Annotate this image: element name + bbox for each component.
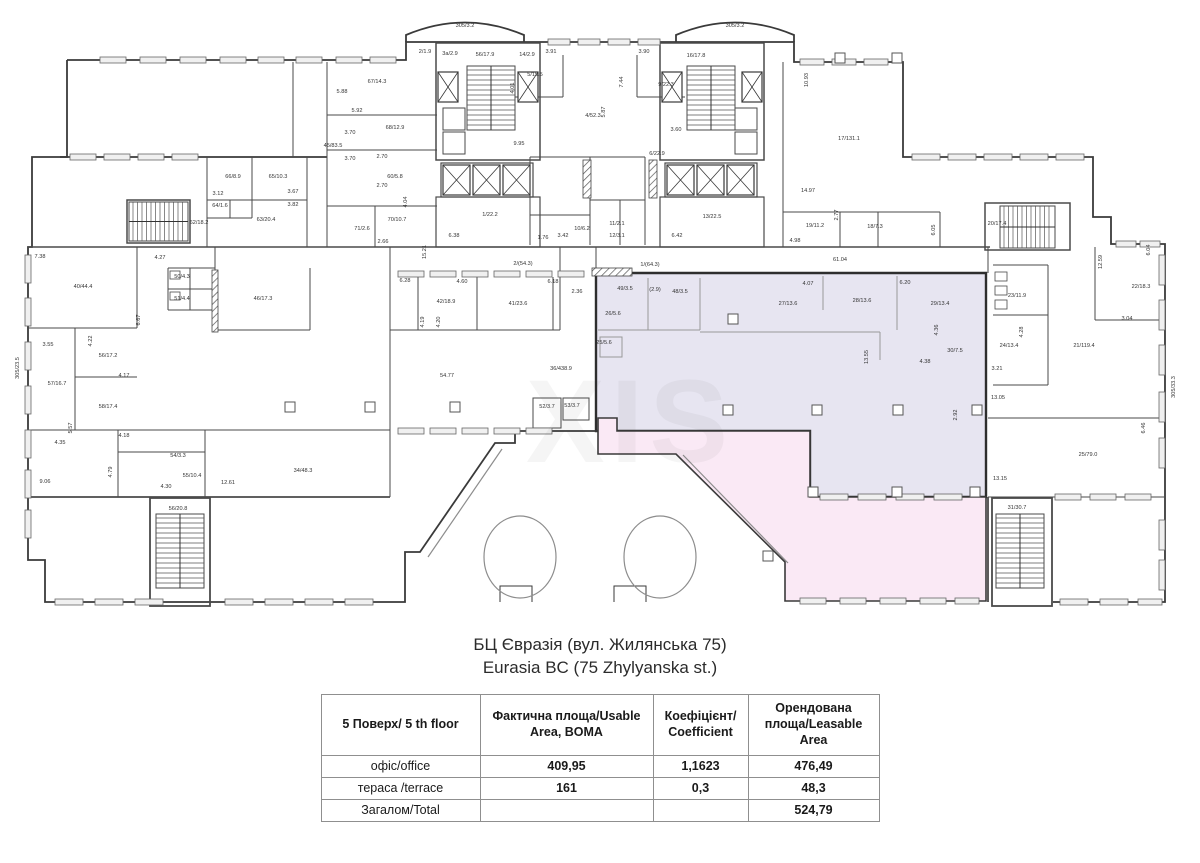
cell-leasable: 524,79 bbox=[748, 799, 879, 821]
svg-text:305/33.3: 305/33.3 bbox=[1171, 376, 1177, 398]
svg-text:54/3.3: 54/3.3 bbox=[170, 453, 186, 459]
svg-text:56/17.9: 56/17.9 bbox=[476, 52, 495, 58]
cell-usable bbox=[480, 799, 653, 821]
floor-plan-area: XIS 305/3.2305/3.22/1.93a/2.956/17.914/2… bbox=[0, 0, 1200, 628]
svg-text:17/131.1: 17/131.1 bbox=[838, 136, 860, 142]
svg-text:64/1.6: 64/1.6 bbox=[212, 203, 228, 209]
svg-text:29/13.4: 29/13.4 bbox=[931, 301, 950, 307]
svg-text:3.04: 3.04 bbox=[1122, 316, 1133, 322]
cell-usable: 409,95 bbox=[480, 755, 653, 777]
svg-text:6.42: 6.42 bbox=[672, 233, 683, 239]
svg-text:4.30: 4.30 bbox=[161, 484, 172, 490]
svg-text:14/2.9: 14/2.9 bbox=[519, 52, 535, 58]
svg-text:21/119.4: 21/119.4 bbox=[1073, 343, 1094, 349]
svg-text:11/2.1: 11/2.1 bbox=[609, 221, 624, 227]
svg-text:12/3.1: 12/3.1 bbox=[609, 233, 625, 239]
svg-text:56/20.8: 56/20.8 bbox=[169, 506, 188, 512]
svg-text:2.70: 2.70 bbox=[377, 154, 388, 160]
svg-text:3.70: 3.70 bbox=[345, 156, 356, 162]
svg-text:7.44: 7.44 bbox=[619, 77, 625, 88]
svg-text:4.38: 4.38 bbox=[920, 359, 931, 365]
svg-text:1/22.2: 1/22.2 bbox=[482, 212, 498, 218]
svg-text:12.61: 12.61 bbox=[221, 480, 235, 486]
svg-text:4.07: 4.07 bbox=[803, 281, 814, 287]
svg-text:65/10.3: 65/10.3 bbox=[269, 174, 288, 180]
svg-text:4.04: 4.04 bbox=[403, 197, 409, 208]
svg-text:3.90: 3.90 bbox=[639, 49, 650, 55]
floor-plan-drawing: XIS 305/3.2305/3.22/1.93a/2.956/17.914/2… bbox=[0, 0, 1200, 628]
svg-text:51/4.4: 51/4.4 bbox=[174, 296, 190, 302]
svg-text:2.36: 2.36 bbox=[572, 289, 583, 295]
col-header-leasable: Орендована площа/Leasable Area bbox=[748, 694, 879, 755]
svg-text:6.28: 6.28 bbox=[400, 278, 411, 284]
svg-text:4.36: 4.36 bbox=[934, 325, 940, 336]
svg-text:3.82: 3.82 bbox=[288, 202, 299, 208]
svg-text:61.04: 61.04 bbox=[833, 257, 847, 263]
svg-text:13/22.5: 13/22.5 bbox=[703, 214, 722, 220]
svg-text:6.67: 6.67 bbox=[136, 315, 142, 326]
svg-text:36/438.9: 36/438.9 bbox=[550, 366, 572, 372]
elevator-shafts bbox=[438, 72, 762, 195]
svg-text:305/3.2: 305/3.2 bbox=[726, 23, 745, 29]
svg-text:6.46: 6.46 bbox=[1141, 423, 1147, 434]
svg-text:6.05: 6.05 bbox=[931, 225, 937, 236]
svg-text:2.66: 2.66 bbox=[378, 239, 389, 245]
svg-text:42/18.9: 42/18.9 bbox=[437, 299, 456, 305]
svg-text:18/7.3: 18/7.3 bbox=[867, 224, 883, 230]
svg-text:3.60: 3.60 bbox=[671, 127, 682, 133]
svg-text:30/7.5: 30/7.5 bbox=[947, 348, 963, 354]
svg-text:7.38: 7.38 bbox=[35, 254, 46, 260]
svg-text:14.97: 14.97 bbox=[801, 188, 815, 194]
svg-text:4.01: 4.01 bbox=[510, 83, 516, 94]
svg-text:9.95: 9.95 bbox=[514, 141, 525, 147]
svg-text:53/3.7: 53/3.7 bbox=[564, 403, 580, 409]
svg-text:67/14.3: 67/14.3 bbox=[368, 79, 387, 85]
svg-text:26/5.6: 26/5.6 bbox=[605, 311, 621, 317]
svg-text:305/3.2: 305/3.2 bbox=[456, 23, 475, 29]
svg-text:68/12.9: 68/12.9 bbox=[386, 125, 405, 131]
svg-text:9.06: 9.06 bbox=[40, 479, 51, 485]
svg-text:4.18: 4.18 bbox=[119, 433, 130, 439]
svg-text:27/13.6: 27/13.6 bbox=[779, 301, 798, 307]
svg-text:24/13.4: 24/13.4 bbox=[1000, 343, 1019, 349]
svg-text:25/79.0: 25/79.0 bbox=[1079, 452, 1098, 458]
svg-text:10.93: 10.93 bbox=[804, 73, 810, 87]
svg-text:25/5.6: 25/5.6 bbox=[596, 340, 612, 346]
svg-text:4.17: 4.17 bbox=[119, 373, 130, 379]
svg-text:5.57: 5.57 bbox=[68, 423, 74, 434]
title-block: БЦ Євразія (вул. Жилянська 75) Eurasia B… bbox=[0, 634, 1200, 680]
cell-coefficient bbox=[653, 799, 748, 821]
svg-text:22/18.3: 22/18.3 bbox=[1132, 284, 1151, 290]
svg-text:2.77: 2.77 bbox=[834, 210, 840, 221]
row-label: офіс/office bbox=[321, 755, 480, 777]
svg-text:62/18.2: 62/18.2 bbox=[190, 220, 209, 226]
row-label: Загалом/Total bbox=[321, 799, 480, 821]
svg-text:20/17.4: 20/17.4 bbox=[988, 221, 1007, 227]
svg-text:6.04: 6.04 bbox=[1146, 245, 1152, 256]
page-title-uk: БЦ Євразія (вул. Жилянська 75) bbox=[0, 634, 1200, 657]
svg-text:58/17.4: 58/17.4 bbox=[99, 404, 118, 410]
area-table: 5 Поверх/ 5 th floor Фактична площа/Usab… bbox=[321, 694, 880, 822]
svg-text:60/5.8: 60/5.8 bbox=[387, 174, 403, 180]
svg-text:46/17.3: 46/17.3 bbox=[254, 296, 273, 302]
svg-text:70/10.7: 70/10.7 bbox=[388, 217, 407, 223]
cell-leasable: 48,3 bbox=[748, 777, 879, 799]
svg-text:4.22: 4.22 bbox=[88, 336, 94, 347]
svg-text:6.18: 6.18 bbox=[548, 279, 559, 285]
svg-text:12.59: 12.59 bbox=[1098, 255, 1104, 269]
cell-coefficient: 0,3 bbox=[653, 777, 748, 799]
watermark: XIS bbox=[526, 356, 734, 488]
cell-leasable: 476,49 bbox=[748, 755, 879, 777]
svg-text:48/3.5: 48/3.5 bbox=[672, 289, 688, 295]
row-label: тераса /terrace bbox=[321, 777, 480, 799]
svg-text:3.91: 3.91 bbox=[546, 49, 557, 55]
svg-text:40/44.4: 40/44.4 bbox=[74, 284, 93, 290]
svg-text:4.28: 4.28 bbox=[1019, 327, 1025, 338]
svg-text:1/(64.3): 1/(64.3) bbox=[640, 262, 659, 268]
svg-text:9/22.3: 9/22.3 bbox=[658, 82, 674, 88]
svg-text:2.70: 2.70 bbox=[377, 183, 388, 189]
svg-text:31/30.7: 31/30.7 bbox=[1008, 505, 1027, 511]
svg-text:2/(54.3): 2/(54.3) bbox=[513, 261, 532, 267]
svg-text:4.27: 4.27 bbox=[155, 255, 166, 261]
table-row-office: офіс/office 409,95 1,1623 476,49 bbox=[321, 755, 879, 777]
col-header-coefficient: Коефіцієнт/ Coefficient bbox=[653, 694, 748, 755]
col-header-floor: 5 Поверх/ 5 th floor bbox=[321, 694, 480, 755]
svg-text:6/22.9: 6/22.9 bbox=[649, 151, 665, 157]
svg-text:13.15: 13.15 bbox=[993, 476, 1007, 482]
svg-text:3.55: 3.55 bbox=[43, 342, 54, 348]
svg-text:4.19: 4.19 bbox=[420, 317, 426, 328]
cell-coefficient: 1,1623 bbox=[653, 755, 748, 777]
svg-text:28/13.6: 28/13.6 bbox=[853, 298, 872, 304]
svg-text:3.12: 3.12 bbox=[213, 191, 224, 197]
cell-usable: 161 bbox=[480, 777, 653, 799]
table-header-row: 5 Поверх/ 5 th floor Фактична площа/Usab… bbox=[321, 694, 879, 755]
svg-text:10/6.2: 10/6.2 bbox=[574, 226, 590, 232]
svg-text:2.92: 2.92 bbox=[953, 410, 959, 421]
svg-text:54.77: 54.77 bbox=[440, 373, 454, 379]
svg-text:5.88: 5.88 bbox=[337, 89, 348, 95]
svg-text:63/20.4: 63/20.4 bbox=[257, 217, 276, 223]
svg-text:4.60: 4.60 bbox=[457, 279, 468, 285]
svg-text:6.38: 6.38 bbox=[449, 233, 460, 239]
svg-text:4.35: 4.35 bbox=[55, 440, 66, 446]
svg-text:13.55: 13.55 bbox=[864, 350, 870, 364]
svg-text:52/3.7: 52/3.7 bbox=[539, 404, 555, 410]
table-row-total: Загалом/Total 524,79 bbox=[321, 799, 879, 821]
page-title-en: Eurasia BC (75 Zhylyanska st.) bbox=[0, 657, 1200, 680]
svg-text:66/8.9: 66/8.9 bbox=[225, 174, 241, 180]
svg-text:3a/2.9: 3a/2.9 bbox=[442, 51, 458, 57]
svg-text:3.42: 3.42 bbox=[558, 233, 569, 239]
svg-text:50/4.3: 50/4.3 bbox=[174, 274, 190, 280]
svg-text:49/3.5: 49/3.5 bbox=[617, 286, 633, 292]
svg-text:4.79: 4.79 bbox=[108, 467, 114, 478]
svg-text:45/83.5: 45/83.5 bbox=[324, 143, 343, 149]
svg-text:1.76: 1.76 bbox=[538, 235, 549, 241]
dome-circle-right bbox=[624, 516, 696, 598]
svg-text:5.92: 5.92 bbox=[352, 108, 363, 114]
svg-text:13.05: 13.05 bbox=[991, 395, 1005, 401]
svg-text:4/52.3: 4/52.3 bbox=[585, 113, 601, 119]
svg-text:34/48.3: 34/48.3 bbox=[294, 468, 313, 474]
col-header-usable: Фактична площа/Usable Area, BOMA bbox=[480, 694, 653, 755]
svg-text:3.67: 3.67 bbox=[288, 189, 299, 195]
svg-text:23/11.9: 23/11.9 bbox=[1008, 293, 1026, 299]
svg-text:2/1.9: 2/1.9 bbox=[419, 49, 431, 55]
svg-text:(2.9): (2.9) bbox=[649, 287, 661, 293]
svg-text:19/11.2: 19/11.2 bbox=[806, 223, 824, 229]
svg-text:3.21: 3.21 bbox=[992, 366, 1003, 372]
svg-text:4.20: 4.20 bbox=[436, 317, 442, 328]
svg-text:6.20: 6.20 bbox=[900, 280, 911, 286]
svg-text:55/10.4: 55/10.4 bbox=[183, 473, 202, 479]
svg-text:3.70: 3.70 bbox=[345, 130, 356, 136]
svg-text:15.21: 15.21 bbox=[422, 245, 428, 259]
svg-text:5/15.5: 5/15.5 bbox=[527, 72, 543, 78]
svg-text:56/17.2: 56/17.2 bbox=[99, 353, 118, 359]
svg-text:305/23.5: 305/23.5 bbox=[15, 357, 21, 379]
svg-text:4.98: 4.98 bbox=[790, 238, 801, 244]
svg-text:5.87: 5.87 bbox=[601, 107, 607, 118]
table-row-terrace: тераса /terrace 161 0,3 48,3 bbox=[321, 777, 879, 799]
svg-text:41/23.6: 41/23.6 bbox=[509, 301, 528, 307]
svg-text:57/16.7: 57/16.7 bbox=[48, 381, 67, 387]
svg-text:16/17.8: 16/17.8 bbox=[687, 53, 706, 59]
svg-text:71/2.6: 71/2.6 bbox=[354, 226, 370, 232]
